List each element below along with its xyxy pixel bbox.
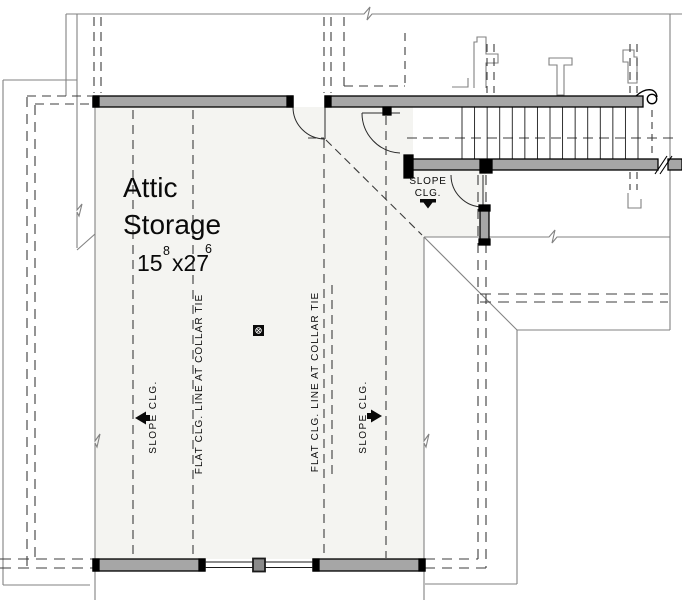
top-wall-right-cap	[325, 96, 331, 107]
stair-slope-label-line2: CLG.	[415, 188, 442, 199]
bottom-wall-cap-a	[93, 559, 99, 571]
bottom-wall-left	[93, 559, 205, 571]
bottom-wall-cap-c	[313, 559, 319, 571]
window	[205, 559, 313, 572]
room-dim-sup-b: 6	[205, 242, 212, 256]
room-dim-feet-b: x27	[172, 250, 209, 276]
flat-clg-label-left: FLAT CLG. LINE AT COLLAR TIE	[194, 294, 205, 474]
newel-circle	[647, 94, 656, 103]
stair-treads	[462, 108, 638, 160]
flat-clg-label-right: FLAT CLG. LINE AT COLLAR TIE	[310, 292, 321, 472]
room-dim-sup-a: 8	[163, 244, 170, 258]
floor-plan-svg: Attic Storage 15 8 x27 6 SLOPE CLG. SLOP…	[0, 0, 682, 600]
stair-lower-wall	[412, 159, 658, 170]
stair-lower-wall-tab	[404, 155, 413, 178]
top-wall-left-cap-a	[93, 96, 99, 107]
roof-edge-top	[66, 7, 682, 20]
room-dim-feet-a: 15	[137, 250, 163, 276]
attic-right-wall-line	[424, 237, 429, 600]
bottom-wall-right	[313, 559, 425, 571]
room-title-line1: Attic	[123, 172, 177, 203]
hip-diagonal	[424, 237, 517, 330]
bottom-wall-cap-d	[419, 559, 425, 571]
ceiling-fixture-marker	[253, 325, 264, 336]
bottom-wall-cap-b	[199, 559, 205, 571]
top-wall-right	[325, 96, 643, 107]
understair-door-jamb	[480, 160, 492, 173]
top-wall-left-cap-b	[287, 96, 293, 107]
stair-slope-label-line1: SLOPE	[409, 176, 446, 187]
top-wall-left	[93, 96, 293, 107]
vent-outline-2	[549, 58, 572, 95]
stair-lower-wall-right	[668, 159, 682, 170]
bracket-below-stair	[628, 193, 641, 208]
vent-outline-1b	[452, 78, 468, 87]
roof-edge-valley	[77, 14, 82, 248]
stair-door-jamb-tab	[383, 107, 391, 115]
understair-wall-cap-b	[479, 239, 490, 245]
understair-wall-cap-a	[479, 205, 490, 211]
room-title-line2: Storage	[123, 209, 221, 240]
roof-break-diagonal	[77, 234, 95, 250]
window-mullion	[253, 559, 265, 572]
floor-plan-sheet: Attic Storage 15 8 x27 6 SLOPE CLG. SLOP…	[0, 0, 682, 600]
understair-wall	[480, 207, 489, 243]
